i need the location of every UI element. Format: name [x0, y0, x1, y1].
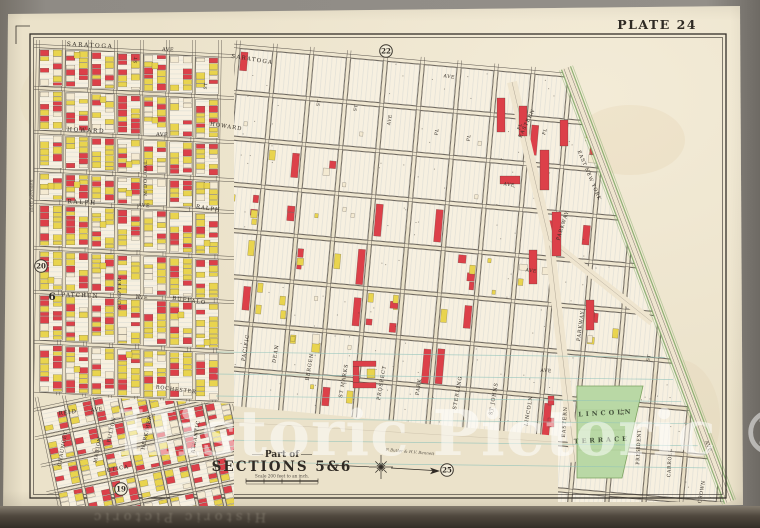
building: [196, 392, 205, 396]
north-arrow: [391, 468, 433, 471]
building: [196, 220, 205, 226]
building: [131, 154, 140, 160]
building: [144, 62, 153, 67]
building: [105, 85, 114, 88]
building: [66, 216, 75, 220]
building: [183, 85, 192, 90]
building: [66, 333, 75, 337]
city-block: [749, 140, 760, 184]
building: [170, 124, 179, 131]
building: [183, 121, 192, 125]
building: [157, 321, 166, 327]
building: [131, 300, 140, 307]
building: [66, 101, 75, 105]
building: [66, 317, 75, 321]
building: [74, 366, 80, 372]
building: [92, 241, 101, 246]
street-label-ave: AVE: [155, 132, 168, 139]
building: [53, 331, 62, 336]
building: [92, 312, 101, 316]
building: [157, 97, 166, 103]
owner-note: P. Butler & H.V. Bennett: [385, 447, 435, 456]
building: [183, 353, 192, 357]
city-block: [679, 88, 715, 132]
building: [66, 304, 75, 311]
building: [53, 92, 62, 96]
building: [105, 69, 114, 75]
building: [253, 195, 259, 203]
building: [66, 337, 75, 340]
building: [92, 213, 101, 216]
building: [157, 339, 166, 343]
building: [157, 104, 166, 109]
building: [40, 156, 49, 161]
street-label-saratoga: SARATOGA: [67, 42, 114, 50]
building: [170, 227, 179, 233]
building: [53, 112, 62, 116]
building: [747, 469, 751, 473]
building: [79, 283, 88, 288]
building: [170, 370, 179, 376]
building: [131, 109, 140, 114]
building: [170, 198, 179, 202]
building: [209, 368, 218, 373]
building: [105, 244, 114, 248]
building: [40, 312, 49, 315]
building: [79, 347, 88, 352]
building: [53, 352, 62, 356]
building: [342, 182, 346, 186]
building: [40, 272, 49, 278]
building: [100, 97, 106, 103]
building: [196, 214, 205, 219]
building: [66, 260, 75, 266]
building: [92, 100, 101, 105]
building: [53, 83, 62, 86]
building: [92, 152, 101, 156]
building: [183, 238, 192, 243]
building: [105, 162, 114, 166]
building: [92, 162, 101, 168]
building: [367, 369, 375, 378]
building: [92, 95, 101, 100]
building: [240, 477, 245, 485]
building: [105, 75, 114, 80]
building: [170, 99, 179, 103]
building: [66, 373, 75, 379]
building: [40, 351, 49, 357]
building: [92, 255, 101, 259]
building: [105, 372, 114, 378]
building: [53, 136, 62, 142]
circled-number-text: 22: [381, 46, 391, 55]
building: [209, 304, 218, 309]
building: [66, 234, 75, 239]
building: [209, 64, 218, 70]
building: [79, 240, 88, 245]
building: [170, 266, 179, 271]
building: [40, 104, 49, 109]
building: [183, 233, 192, 237]
building: [79, 368, 88, 374]
building: [66, 93, 75, 100]
building: [79, 217, 88, 222]
building: [92, 187, 101, 193]
building: [66, 353, 75, 357]
city-block: [700, 274, 736, 318]
building: [40, 142, 49, 149]
building: [131, 322, 140, 326]
building: [157, 257, 166, 262]
building: [196, 320, 205, 326]
building: [196, 294, 205, 297]
building: [66, 192, 75, 197]
building: [118, 261, 127, 265]
building: [157, 77, 166, 83]
building: [105, 313, 114, 317]
city-block: [753, 94, 760, 138]
building: [92, 349, 101, 354]
building: [53, 183, 62, 189]
building: [66, 240, 75, 245]
building: [196, 327, 205, 334]
building: [738, 164, 744, 172]
building: [53, 356, 62, 361]
building: [66, 65, 75, 69]
building: [66, 327, 75, 333]
rowhouse-strip: [586, 300, 594, 330]
building: [257, 283, 263, 293]
building: [297, 258, 304, 266]
building: [157, 291, 166, 295]
building: [40, 110, 49, 115]
building: [79, 276, 88, 282]
building: [196, 380, 205, 386]
building: [500, 489, 506, 495]
building: [170, 334, 179, 338]
building: [144, 391, 153, 397]
building: [105, 119, 114, 124]
building: [66, 220, 75, 226]
building: [196, 345, 205, 347]
building: [131, 69, 140, 74]
building: [751, 155, 758, 165]
photo-bottom-edge: Historic Pictoric: [0, 506, 760, 528]
building: [66, 207, 75, 211]
building: [170, 153, 179, 158]
building: [209, 334, 218, 337]
building: [209, 100, 218, 105]
rowhouse-strip: [529, 250, 537, 284]
building: [66, 56, 75, 60]
building: [196, 354, 205, 361]
building: [118, 76, 127, 82]
building: [209, 164, 218, 168]
building: [223, 239, 232, 258]
corner-tick: [16, 26, 30, 44]
building: [393, 295, 399, 303]
building: [144, 363, 153, 367]
building: [209, 228, 218, 232]
building: [144, 328, 153, 333]
building: [66, 70, 75, 75]
building: [251, 210, 258, 218]
building: [79, 374, 88, 378]
building: [92, 232, 101, 236]
building: [105, 102, 114, 108]
building: [79, 389, 88, 392]
building: [118, 154, 127, 158]
building: [105, 187, 114, 194]
building: [183, 132, 192, 136]
rowhouse-strip: [548, 396, 554, 405]
building: [388, 488, 397, 499]
building: [79, 153, 88, 158]
building: [131, 368, 140, 374]
building: [105, 156, 114, 162]
building: [118, 384, 127, 389]
building: [105, 108, 114, 112]
building: [474, 195, 478, 199]
building: [53, 64, 62, 69]
city-block: [667, 225, 703, 269]
building: [196, 260, 205, 266]
building: [348, 345, 352, 349]
building: [79, 51, 88, 57]
building: [209, 338, 218, 344]
building: [66, 357, 75, 362]
street-label-ave: AVE: [539, 368, 552, 375]
building: [209, 80, 218, 84]
building: [170, 131, 179, 135]
building: [183, 365, 192, 369]
building: [118, 390, 127, 395]
rowhouse-strip: [540, 150, 549, 190]
building: [157, 373, 166, 376]
building: [131, 96, 140, 101]
building: [196, 387, 205, 391]
building: [79, 63, 88, 68]
street-label-ralph: RALPH: [67, 199, 97, 207]
building: [279, 296, 285, 305]
building: [329, 161, 336, 169]
building: [183, 248, 192, 252]
building: [241, 498, 250, 503]
building: [92, 370, 101, 376]
building: [40, 184, 49, 189]
building: [105, 139, 114, 145]
building: [40, 241, 49, 245]
building: [66, 227, 75, 233]
building: [157, 284, 166, 290]
building: [118, 361, 127, 365]
building: [209, 169, 218, 175]
building: [183, 80, 192, 85]
building: [244, 122, 248, 126]
building: [144, 147, 153, 152]
building: [40, 377, 49, 381]
building: [118, 163, 127, 167]
building: [209, 260, 218, 265]
building: [53, 217, 62, 221]
building: [92, 79, 101, 86]
building: [40, 206, 49, 212]
building: [40, 190, 49, 195]
building: [209, 374, 218, 380]
building: [209, 76, 218, 80]
street-label-st: ST: [204, 82, 210, 89]
building: [105, 385, 114, 389]
building: [40, 284, 49, 289]
building: [92, 332, 101, 335]
building: [118, 256, 127, 260]
building: [40, 80, 49, 85]
building: [209, 354, 218, 360]
building: [40, 280, 49, 284]
building: [40, 68, 49, 72]
building: [131, 313, 140, 317]
building: [74, 182, 80, 188]
building: [209, 113, 218, 118]
building: [118, 341, 127, 343]
building: [488, 258, 492, 262]
building: [209, 133, 218, 137]
building: [66, 347, 75, 352]
building: [351, 486, 358, 496]
building: [204, 240, 210, 246]
building: [53, 97, 62, 101]
building: [118, 159, 127, 163]
building: [196, 133, 205, 137]
building: [105, 167, 114, 170]
building: [40, 358, 49, 364]
building: [157, 148, 166, 152]
building: [144, 314, 153, 320]
building: [66, 82, 75, 86]
circled-number-text: 20: [36, 261, 46, 270]
building: [170, 285, 179, 289]
building: [170, 169, 179, 173]
building: [105, 57, 114, 62]
building: [183, 329, 192, 334]
street-label-ave: AVE: [137, 203, 150, 210]
building: [144, 68, 153, 74]
city-block: [500, 441, 536, 485]
building: [170, 181, 179, 188]
building: [144, 377, 153, 384]
building: [196, 154, 205, 158]
building: [79, 192, 88, 198]
building: [144, 231, 153, 236]
building: [131, 262, 140, 265]
building: [170, 303, 179, 307]
building: [209, 182, 218, 189]
street-label-sumpter: SUMPTER: [117, 277, 123, 309]
building: [79, 379, 88, 384]
building: [170, 314, 179, 320]
building: [144, 371, 153, 376]
building: [183, 69, 192, 74]
building: [92, 113, 101, 118]
building: [131, 190, 140, 195]
school-building: [353, 383, 376, 389]
building: [92, 306, 101, 312]
atlas-map: SARATOGAAVESARATOGAHOWARDAVEHOWARDRALPHA…: [0, 0, 760, 528]
building: [326, 432, 330, 436]
building: [144, 358, 153, 362]
building: [79, 137, 88, 140]
building: [157, 244, 166, 250]
building: [40, 50, 49, 56]
building: [209, 328, 218, 333]
building: [157, 351, 166, 354]
building: [170, 353, 179, 358]
building: [721, 251, 725, 255]
margin-note: John Remsen: [29, 179, 35, 213]
building: [329, 433, 333, 437]
building: [196, 144, 205, 148]
building: [209, 149, 218, 154]
building: [269, 150, 276, 160]
building: [126, 161, 132, 167]
building: [105, 62, 114, 68]
building: [79, 384, 88, 388]
building: [40, 387, 49, 392]
building: [440, 309, 447, 323]
building: [66, 212, 75, 215]
building: [310, 385, 314, 389]
building: [492, 290, 496, 294]
building: [40, 149, 49, 155]
building: [79, 116, 88, 121]
building: [105, 260, 114, 267]
building: [53, 279, 62, 285]
building: [79, 175, 88, 179]
north-arrow-head: [430, 468, 440, 475]
building: [105, 195, 114, 200]
building: [92, 237, 101, 241]
building: [105, 209, 114, 213]
building: [79, 312, 88, 317]
building: [518, 279, 523, 286]
building: [287, 212, 295, 221]
building: [131, 354, 140, 358]
building: [131, 227, 140, 231]
building: [118, 122, 127, 127]
building: [157, 368, 166, 372]
building: [183, 226, 192, 233]
building: [183, 264, 192, 268]
building: [209, 273, 218, 277]
building: [209, 155, 218, 159]
building: [157, 55, 166, 58]
building: [196, 128, 205, 133]
building: [157, 84, 166, 90]
building: [196, 117, 205, 122]
building: [218, 387, 227, 394]
building: [53, 286, 62, 290]
building: [209, 144, 218, 149]
building: [118, 103, 127, 109]
building: [131, 273, 140, 279]
building: [118, 380, 127, 384]
building: [118, 96, 127, 102]
building: [170, 358, 179, 362]
building: [478, 141, 482, 145]
building: [131, 160, 140, 164]
building: [196, 234, 205, 237]
building: [100, 263, 106, 269]
